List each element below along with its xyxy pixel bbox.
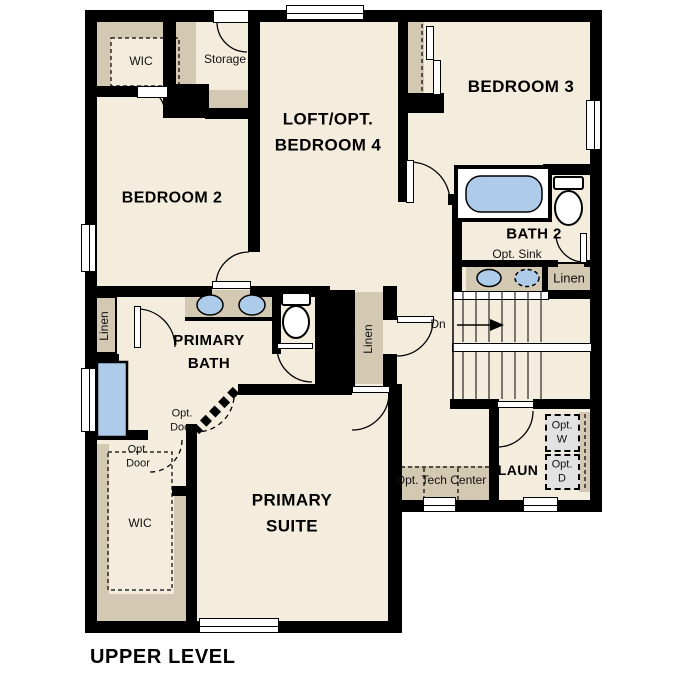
- storage-shelf-bottom: [207, 90, 248, 108]
- stair-landing-rail: [452, 291, 549, 300]
- primary-vanity-edge: [185, 317, 272, 321]
- wall: [91, 286, 212, 297]
- wall: [88, 430, 148, 440]
- wall: [85, 86, 137, 97]
- hall-window: [423, 497, 456, 512]
- wall: [248, 22, 260, 252]
- tech-center-label: Opt. Tech Center: [396, 473, 487, 489]
- bath2-linen-label: Linen: [553, 271, 585, 288]
- closet-slider-panel-2: [433, 60, 441, 95]
- wall: [545, 290, 602, 299]
- opt-door-bath-label: Opt. Door: [170, 407, 194, 436]
- wall: [398, 93, 444, 113]
- loft-window: [286, 5, 364, 20]
- primary-suite-label: PRIMARY SUITE: [252, 488, 333, 541]
- bath2-label: BATH 2: [506, 222, 561, 245]
- laundry-label: LAUN: [498, 460, 538, 482]
- hall-door-leaf: [397, 316, 434, 323]
- wic2-label: WIC: [129, 54, 152, 70]
- wall: [85, 10, 97, 633]
- opt-dryer-label: Opt. D: [552, 458, 573, 487]
- wall: [543, 164, 590, 175]
- loft-label: LOFT/OPT. BEDROOM 4: [275, 107, 382, 160]
- storage-label: Storage: [204, 52, 246, 68]
- wall: [383, 354, 397, 390]
- stair-mid-rail: [452, 343, 592, 352]
- shower-window: [81, 368, 96, 432]
- opt-sink-label: Opt. Sink: [492, 247, 541, 263]
- wall: [163, 84, 209, 118]
- wall: [163, 22, 176, 86]
- opt-door-wic-label: Opt. Door: [126, 443, 150, 472]
- primary-suite-door-leaf: [352, 386, 390, 393]
- bath2-vanity: [466, 264, 548, 292]
- primary-bath-door-leaf: [134, 306, 141, 348]
- bedroom2-label: BEDROOM 2: [122, 187, 223, 212]
- primary-wic-label: WIC: [128, 516, 151, 532]
- wall: [172, 486, 190, 496]
- wic2-shelf-left: [97, 22, 111, 86]
- wic2-door-opening: [137, 86, 168, 98]
- stairs-dn-label: Dn: [430, 317, 445, 333]
- primary-bath-label: PRIMARY BATH: [173, 329, 244, 376]
- wall: [238, 384, 352, 395]
- closet-slider-panel-1: [426, 26, 434, 60]
- wall: [533, 399, 592, 409]
- primary-wic-shelf-bottom: [91, 594, 188, 622]
- wall: [383, 286, 397, 320]
- bedroom3-closet-shelf: [408, 22, 424, 93]
- bedroom2-window: [81, 224, 96, 272]
- laundry-window: [523, 497, 558, 512]
- bedroom3-door-leaf: [406, 160, 414, 203]
- storage-shelf-left: [176, 22, 196, 84]
- primary-linen-label: Linen: [97, 311, 113, 340]
- bedroom3-window: [586, 100, 601, 150]
- plan-title: UPPER LEVEL: [90, 646, 236, 669]
- hall-linen-label: Linen: [361, 324, 377, 353]
- laundry-door-leaf: [497, 401, 534, 408]
- wall: [91, 354, 119, 363]
- wall: [315, 290, 355, 388]
- bath2-door-leaf: [580, 233, 587, 263]
- bedroom3-label: BEDROOM 3: [468, 74, 575, 100]
- primary-suite-window: [199, 618, 279, 633]
- water-closet-door-leaf: [277, 343, 313, 349]
- storage-door-opening: [213, 10, 249, 23]
- wall: [186, 424, 197, 622]
- wall: [388, 384, 402, 633]
- opt-washer-label: Opt. W: [552, 419, 573, 448]
- bedroom2-door-leaf: [212, 281, 251, 289]
- wall: [489, 399, 499, 503]
- floor-plan: WIC Storage BEDROOM 2 LOFT/OPT. BEDROOM …: [0, 0, 687, 687]
- wall: [452, 194, 462, 300]
